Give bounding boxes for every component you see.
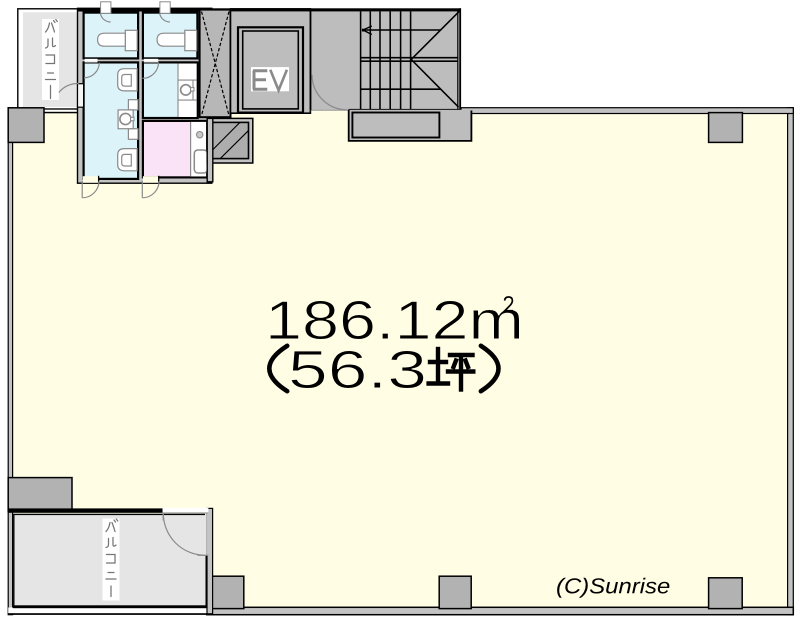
- svg-text:56.3: 56.3: [288, 340, 427, 400]
